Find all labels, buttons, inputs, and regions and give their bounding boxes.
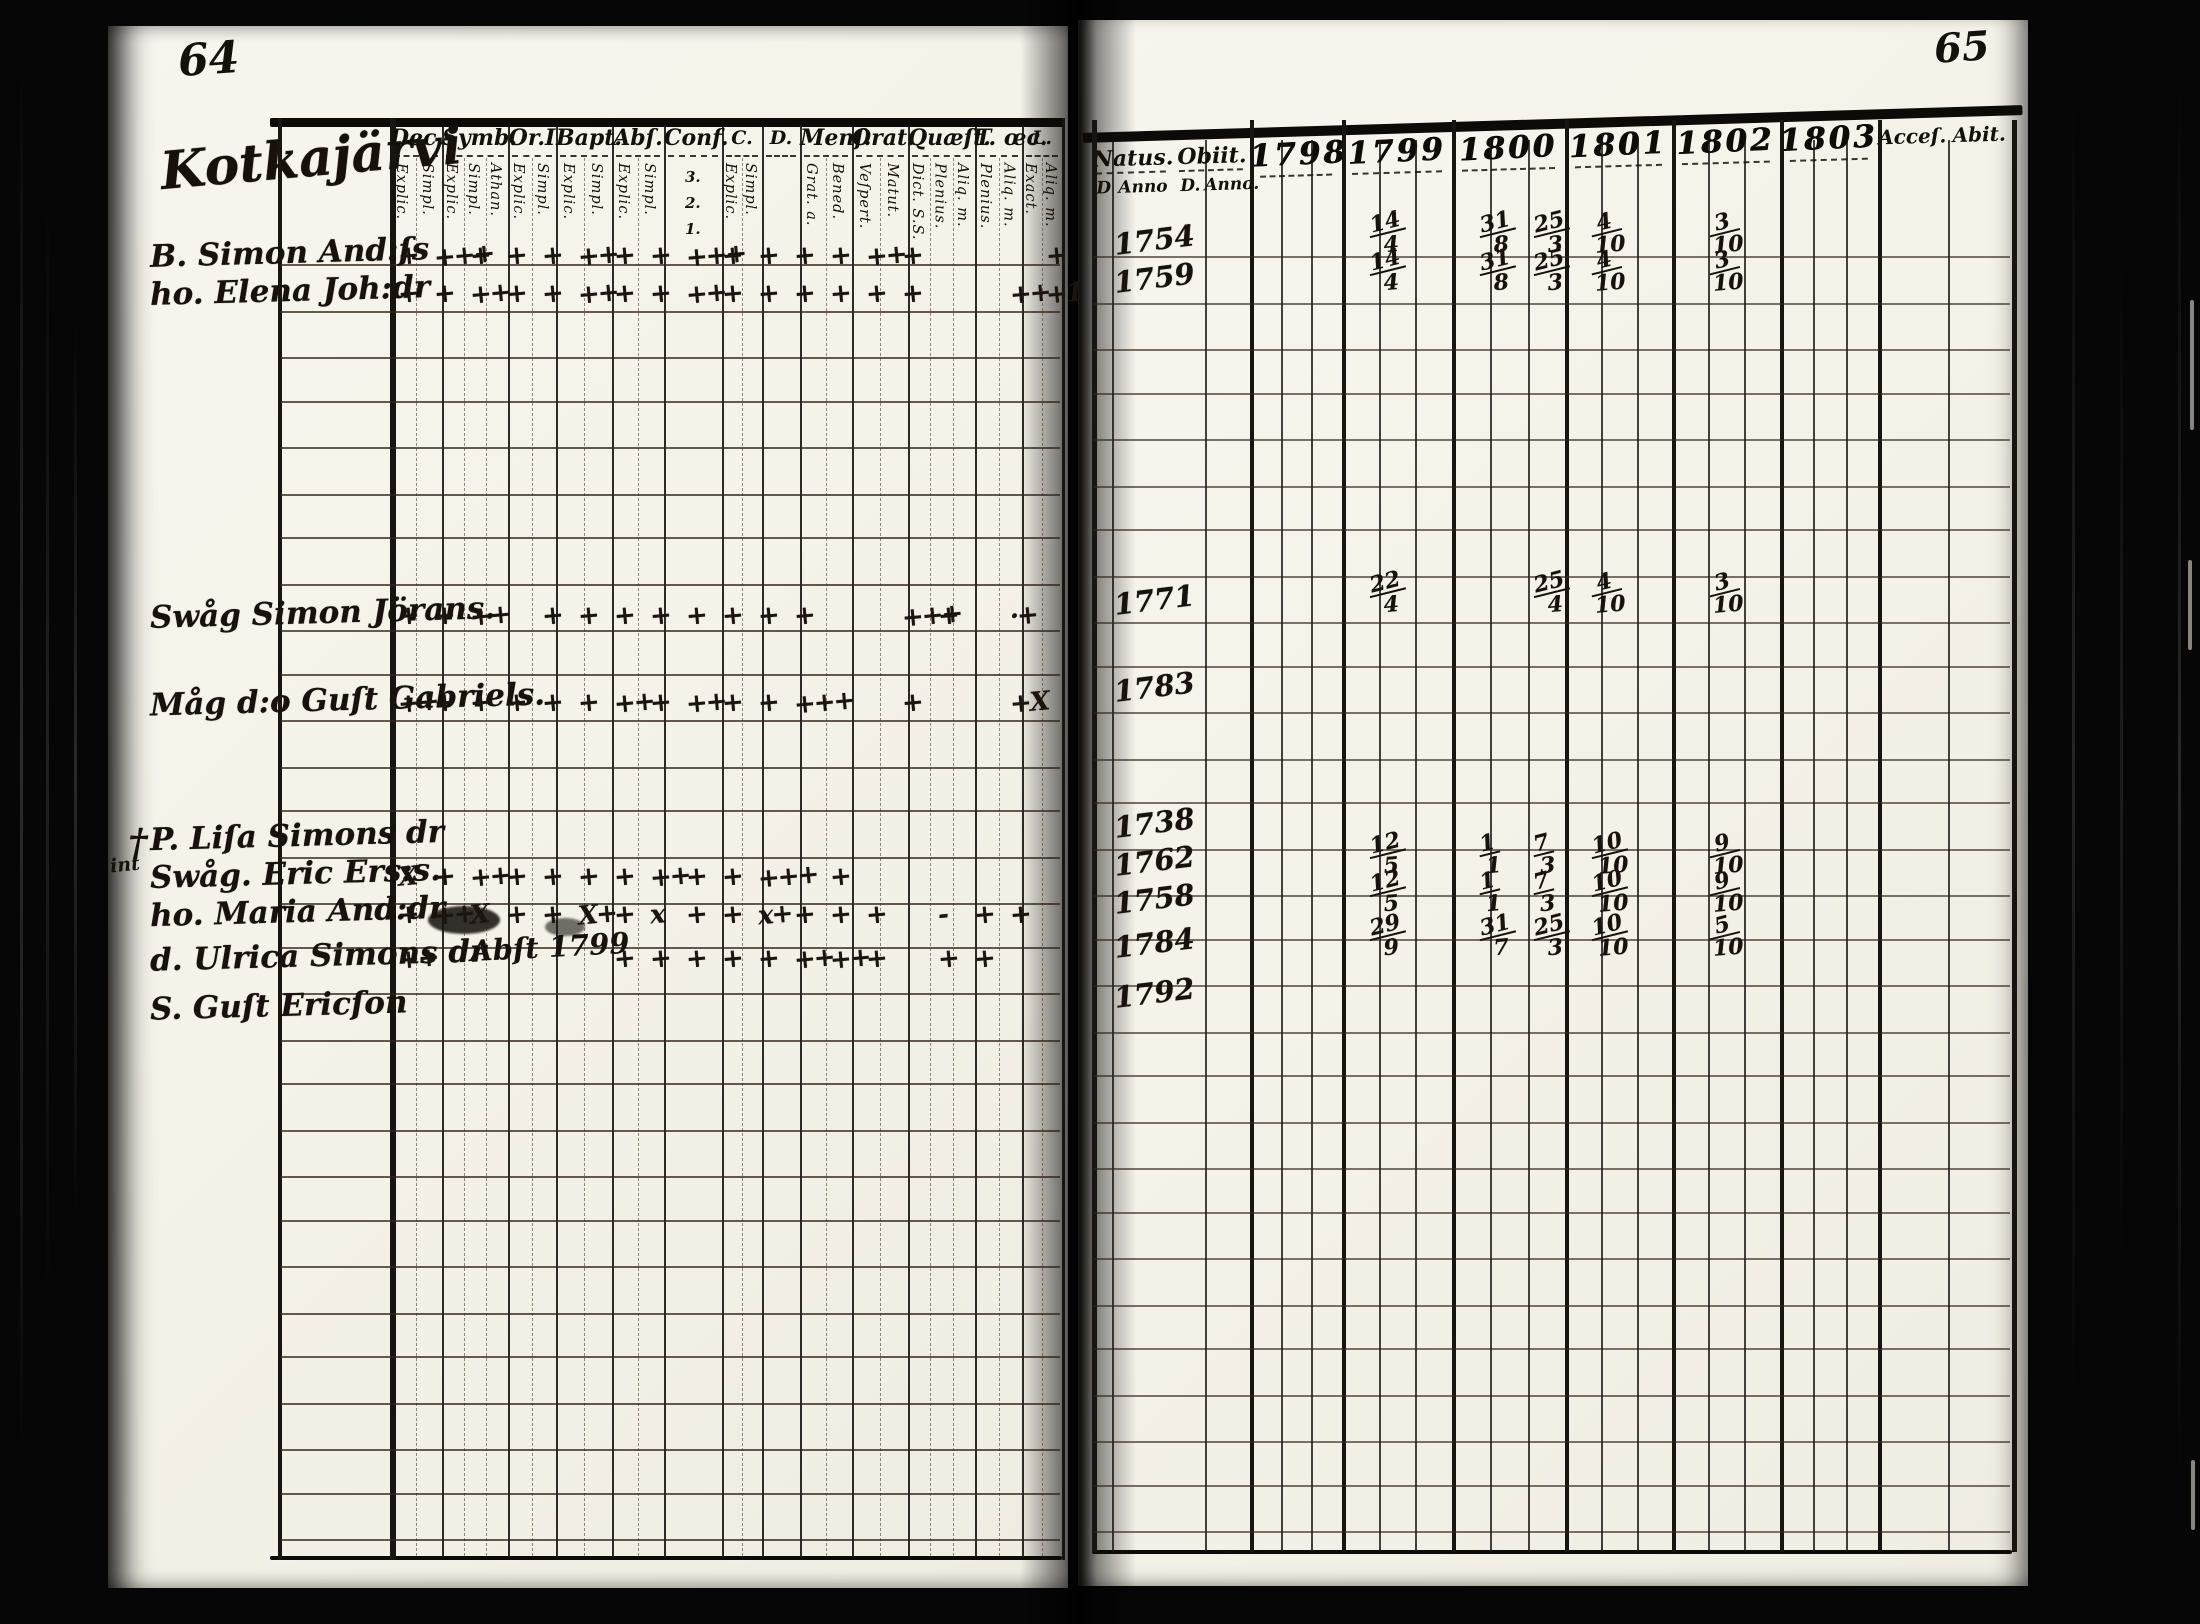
column-rule (975, 126, 977, 1558)
cross-mark: +X (1009, 686, 1049, 719)
column-rule-bold (1780, 120, 1784, 1552)
ruled-line (1094, 1395, 2010, 1397)
ruled-line (1094, 1258, 2010, 1260)
cross-mark: + (721, 861, 743, 893)
column-sub-label: Explic. (616, 163, 630, 243)
column-header: Symb. (442, 126, 508, 150)
column-header-rule (616, 155, 660, 157)
cross-mark: + (901, 687, 923, 719)
cross-mark: ++ (397, 942, 439, 975)
natus-year: 1784 (1112, 921, 1196, 965)
column-rule-bold (2012, 120, 2017, 1552)
ruled-line (1094, 712, 2010, 714)
column-header-rule (394, 155, 438, 157)
cross-mark: + (649, 600, 671, 632)
ruled-line (280, 401, 1060, 403)
ruled-line (1094, 1212, 2010, 1214)
cross-mark: +++ (757, 859, 819, 894)
natus-year: 1783 (1112, 665, 1196, 709)
column-sub-label: Explic. (723, 163, 737, 243)
column-rule-bold (1250, 120, 1254, 1552)
column-rule (762, 126, 764, 1558)
column-rule (508, 126, 510, 1558)
communion-date-month: 9 (1372, 935, 1410, 958)
ruled-line (1094, 439, 2010, 441)
ruled-line (280, 584, 1060, 586)
cross-mark: + (505, 687, 527, 719)
cross-mark: + (757, 278, 779, 310)
column-rule (1281, 140, 1283, 1552)
cross-mark: + (577, 861, 599, 893)
column-rule (722, 126, 724, 1558)
communion-date-month: 10 (1712, 935, 1744, 958)
column-header-rule (804, 155, 848, 157)
ruled-line (1094, 622, 2010, 624)
communion-date-month: 8 (1482, 270, 1520, 293)
ruled-line (280, 1403, 1060, 1405)
cross-mark: + (433, 861, 455, 893)
ruled-line (1094, 1348, 2010, 1350)
column-header: Menſ. (800, 126, 852, 150)
column-header-rule (1026, 155, 1058, 157)
natus-year: 1758 (1112, 877, 1196, 921)
row-name: S. Guſt Ericſon (150, 984, 408, 1027)
cross-mark: +++ (793, 685, 855, 720)
column-rule-bold (1452, 120, 1456, 1552)
ruled-line (1094, 1485, 2010, 1487)
cross-mark: + (505, 899, 527, 931)
cross-mark: + (433, 687, 455, 719)
column-rule (1311, 140, 1313, 1552)
ruled-line (280, 1356, 1060, 1358)
column-rule-bold (1062, 118, 1065, 1560)
column-sub-label: Plenius. (933, 163, 947, 243)
cross-mark: + (757, 600, 779, 632)
cross-mark: + (973, 943, 995, 975)
communion-date: 144 (1366, 249, 1406, 293)
column-sub-label: 2. (685, 194, 701, 212)
column-rule (1528, 140, 1530, 1552)
cross-mark: + (829, 278, 851, 310)
communion-date: 318 (1476, 249, 1516, 293)
ruled-line (1094, 666, 2010, 668)
cross-mark: x+ (757, 899, 793, 932)
cross-mark: + (793, 600, 815, 632)
cross-mark: + (685, 600, 707, 632)
cross-mark: + (721, 278, 743, 310)
ruled-line (1094, 802, 2010, 804)
cross-mark: + (541, 240, 563, 272)
column-sub-label: 1. (685, 220, 701, 238)
cross-mark: + (397, 240, 419, 272)
cross-mark: + (505, 278, 527, 310)
column-rule (852, 126, 854, 1558)
column-rule (1948, 140, 1950, 1552)
ruled-line (280, 357, 1060, 359)
ruled-line (1094, 1075, 2010, 1077)
cross-mark: +1 (1045, 277, 1083, 310)
cross-mark: + (721, 240, 743, 272)
column-sub-label: Explic. (511, 163, 525, 243)
ruled-line (1094, 486, 2010, 488)
column-sub-label: Aliq. m. (1001, 163, 1015, 243)
communion-date: 299 (1366, 914, 1406, 958)
column-rule (1022, 126, 1024, 1558)
ruled-line (280, 1493, 1060, 1495)
cross-mark: + (829, 861, 851, 893)
communion-date-month: 3 (1536, 270, 1574, 293)
cross-mark: + (433, 600, 455, 632)
communion-date: 224 (1366, 571, 1406, 615)
ruled-line (1094, 303, 2010, 305)
communion-date: 73 (1530, 871, 1555, 914)
column-header: T. œc. (975, 126, 1022, 150)
column-rule-bold (1672, 120, 1676, 1552)
column-sub-label: Simpl. (743, 163, 757, 243)
communion-date: 317 (1476, 914, 1516, 958)
ruled-line (280, 494, 1060, 496)
communion-date: 253 (1530, 249, 1570, 293)
cross-mark: + (829, 899, 851, 931)
communion-date-month: 10 (1594, 935, 1632, 958)
communion-date-month: 4 (1536, 592, 1574, 615)
natus-year: 1771 (1112, 578, 1196, 622)
communion-date: 1010 (1588, 914, 1628, 958)
ruled-line (1094, 1032, 2010, 1034)
cross-mark: + (793, 278, 815, 310)
communion-date-month: 10 (1594, 270, 1626, 293)
cross-mark: + (613, 600, 635, 632)
cross-mark: + (937, 943, 959, 975)
row-name: B. Simon And:ſs (150, 231, 430, 275)
column-sub-label: Matut. (885, 163, 899, 243)
column-sub-label: Explic. (561, 163, 575, 243)
communion-date: 410 (1588, 572, 1622, 616)
cross-mark: + (685, 861, 707, 893)
cross-mark: + (433, 278, 455, 310)
column-sub-label: Explic. (444, 163, 458, 243)
cross-mark: + (649, 687, 671, 719)
ruled-line (280, 537, 1060, 539)
communion-date: 310 (1706, 572, 1740, 616)
column-header-rule (856, 155, 904, 157)
communion-date: 510 (1706, 915, 1740, 959)
cross-mark: ·+ (1009, 600, 1038, 632)
cross-mark: + (901, 240, 923, 272)
column-header: C. (722, 126, 762, 150)
cross-mark: + (613, 278, 635, 310)
cross-mark: + (685, 899, 707, 931)
column-sub-label: Dict. S.S. (910, 163, 924, 243)
column-header-rule (766, 155, 796, 157)
row-name: ho. Elena Joh:dr (150, 269, 431, 313)
cross-mark: + (757, 240, 779, 272)
table-bottom-rule (1092, 1550, 2012, 1554)
column-header-rule (446, 155, 504, 157)
cross-mark: + (901, 278, 923, 310)
communion-date: 253 (1530, 914, 1570, 958)
cross-mark: + (793, 240, 815, 272)
ruled-line (280, 1313, 1060, 1315)
ruled-line (280, 1130, 1060, 1132)
column-header: Bapt. (556, 126, 612, 150)
scan-canvas: 64 65 Kotkajärvi Natus.DAnnoObiit.D.Anno… (0, 0, 2200, 1624)
cross-mark: + (613, 240, 635, 272)
column-sub-label: Athan. (488, 163, 502, 243)
cross-mark: + (937, 600, 959, 632)
column-header: Orat. (852, 126, 908, 150)
cross-mark: + (397, 600, 419, 632)
ruled-line (1094, 1441, 2010, 1443)
ruled-line (280, 767, 1060, 769)
margin-annotation: int (109, 853, 141, 878)
cross-mark: + (649, 278, 671, 310)
column-header: D. (762, 126, 800, 150)
ruled-line (1094, 349, 2010, 351)
ruled-line (1094, 529, 2010, 531)
column-sub-label: Simpl. (535, 163, 549, 243)
column-rule (1205, 140, 1207, 1552)
column-header: Dec. (390, 126, 442, 150)
cross-mark: + (829, 240, 851, 272)
column-rule (1415, 140, 1417, 1552)
column-sub-label: Veſpert. (857, 163, 871, 243)
column-rule (1637, 140, 1639, 1552)
communion-date: 254 (1530, 571, 1570, 615)
cross-mark: + (865, 899, 887, 931)
communion-date-month: 10 (1594, 592, 1626, 615)
communion-date-month: 10 (1712, 592, 1744, 615)
communion-date: 910 (1706, 871, 1740, 915)
communion-date-month: 4 (1372, 592, 1410, 615)
communion-date: 1010 (1588, 870, 1628, 914)
communion-date-month: 10 (1712, 891, 1744, 914)
cross-mark: + (721, 600, 743, 632)
cross-mark: X (397, 861, 418, 892)
ruled-line (280, 810, 1060, 812)
column-header-rule (726, 155, 758, 157)
cross-mark: + (541, 600, 563, 632)
column-header: Conf. (664, 126, 722, 150)
communion-date-month: 3 (1536, 935, 1574, 958)
cross-mark: X (469, 899, 490, 930)
cross-mark: + (397, 899, 419, 931)
natus-year: 1762 (1112, 839, 1196, 883)
column-rule (1112, 140, 1114, 1552)
communion-date-month: 4 (1372, 270, 1410, 293)
column-sub-label: Simpl. (466, 163, 480, 243)
column-rule-bold (1342, 120, 1346, 1552)
column-header: L. (1022, 126, 1062, 150)
cross-mark: + (577, 600, 599, 632)
ruled-line (280, 674, 1060, 676)
cross-mark: + (1045, 240, 1067, 272)
ruled-line (280, 1220, 1060, 1222)
column-header-rule (668, 155, 718, 157)
ink-layer: Dec.Explic.Simpl.Symb.Explic.Simpl.Athan… (0, 0, 2200, 1624)
ruled-line (1094, 759, 2010, 761)
communion-date: 125 (1366, 870, 1406, 914)
column-sub-label: Bened. (830, 163, 844, 243)
column-rule (1813, 140, 1815, 1552)
communion-date-month: 10 (1712, 270, 1744, 293)
cross-mark: + (541, 687, 563, 719)
column-rule (664, 126, 666, 1558)
column-sub-label: Aliq. m. (955, 163, 969, 243)
column-sub-label: Aliq. m. (1043, 163, 1057, 243)
column-header-rule (912, 155, 971, 157)
column-rule (1846, 140, 1848, 1552)
ruled-line (280, 1266, 1060, 1268)
cross-mark: + (721, 687, 743, 719)
column-sub-label: Simpl. (642, 163, 656, 243)
column-rule-bold (1092, 120, 1097, 1552)
cross-mark: + (541, 861, 563, 893)
column-sub-label: 3. (685, 168, 701, 186)
column-rule (612, 126, 614, 1558)
column-sub-label: Simpl. (589, 163, 603, 243)
column-rule-bold (1565, 120, 1569, 1552)
column-rule (908, 126, 910, 1558)
cross-mark: + (577, 687, 599, 719)
column-header: Quæſt. (908, 126, 975, 150)
cross-mark: + (757, 943, 779, 975)
column-rule (800, 126, 802, 1558)
column-header-rule (560, 155, 608, 157)
ruled-line (280, 1176, 1060, 1178)
cross-mark: + (793, 899, 815, 931)
cross-mark: x (649, 899, 665, 930)
cross-mark: + (757, 687, 779, 719)
column-sub-label: Exact. (1023, 163, 1037, 243)
communion-date: 310 (1706, 250, 1740, 294)
column-sub-label: Grat. a. (804, 163, 818, 243)
cross-mark: + (721, 899, 743, 931)
cross-mark: + (865, 278, 887, 310)
natus-year: 1792 (1112, 971, 1196, 1015)
ruled-line (280, 1539, 1060, 1541)
communion-date: 410 (1588, 250, 1622, 294)
natus-year: 1759 (1112, 256, 1196, 300)
column-rule (1744, 140, 1746, 1552)
cross-mark: + (397, 278, 419, 310)
communion-date: 11 (1476, 871, 1501, 914)
column-header: Abſ. (612, 126, 664, 150)
column-header-rule (979, 155, 1018, 157)
cross-mark: + (541, 899, 563, 931)
margin-annotation: Abſt 1799 (469, 926, 630, 968)
cross-mark: + (505, 240, 527, 272)
ruled-line (280, 1083, 1060, 1085)
row-name: P. Liſa Simons dr (150, 814, 445, 858)
cross-mark: + (685, 943, 707, 975)
ruled-line (1094, 393, 2010, 395)
column-rule-bold (1878, 120, 1882, 1552)
cross-mark: + (613, 861, 635, 893)
communion-date-month: 7 (1482, 935, 1520, 958)
ruled-line (1094, 985, 2010, 987)
ruled-line (1094, 1168, 2010, 1170)
cross-mark: + (469, 240, 491, 272)
cross-mark: + (541, 278, 563, 310)
cross-mark: + (469, 687, 491, 719)
cross-mark: ++ (469, 599, 511, 632)
cross-mark: + (505, 861, 527, 893)
column-header: Or.I (508, 126, 556, 150)
ruled-line (1094, 1305, 2010, 1307)
ruled-line (280, 447, 1060, 449)
cross-mark: + (973, 899, 995, 931)
table-bottom-rule (270, 1556, 1062, 1560)
cross-mark: + (721, 943, 743, 975)
cross-mark: + (649, 943, 671, 975)
natus-year: 1738 (1112, 801, 1196, 845)
ruled-line (280, 1040, 1060, 1042)
ruled-line (1094, 1531, 2010, 1533)
ruled-line (280, 1449, 1060, 1451)
ruled-line (1094, 1122, 2010, 1124)
column-header-rule (512, 155, 552, 157)
ruled-line (280, 311, 1060, 313)
cross-mark: + (865, 943, 887, 975)
column-rule (556, 126, 558, 1558)
ruled-line (280, 720, 1060, 722)
column-sub-label: Plenius. (978, 163, 992, 243)
cross-mark: + (1009, 899, 1031, 931)
cross-mark: + (649, 240, 671, 272)
